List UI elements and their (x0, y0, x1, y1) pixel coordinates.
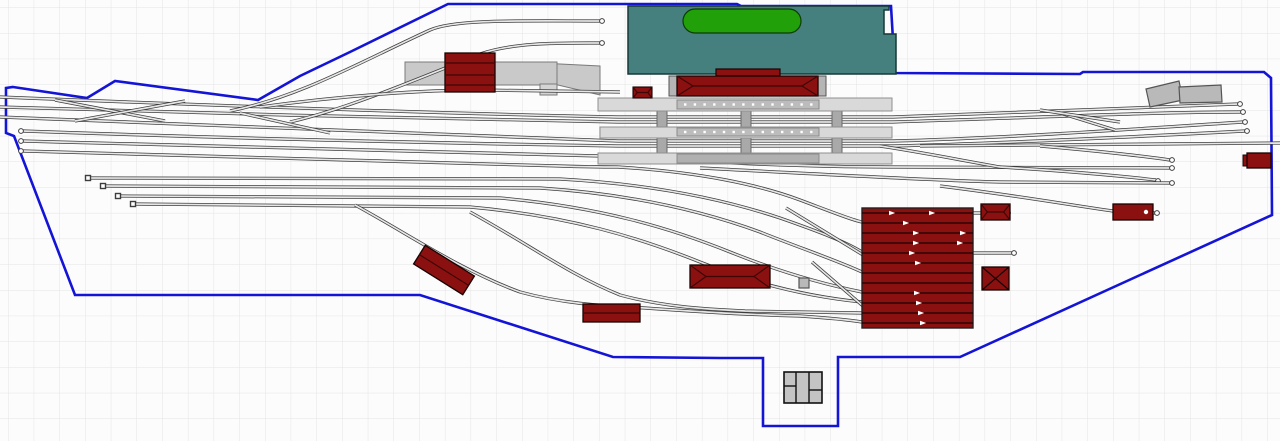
track-end-marker (19, 139, 24, 144)
canopy-column-dot (713, 103, 715, 105)
canopy-column-dot (762, 103, 764, 105)
east-edge-hut[interactable] (1243, 153, 1271, 168)
gray-building-2[interactable] (1179, 85, 1222, 103)
station-pillar (818, 76, 826, 96)
canopy-column-dot (781, 131, 783, 133)
track-end-marker (19, 149, 24, 154)
canopy-column-dot (713, 131, 715, 133)
building-dot (1144, 210, 1148, 214)
small-gray-structure[interactable] (799, 278, 809, 288)
track-end-marker (19, 129, 24, 134)
canopy-column-dot (703, 103, 705, 105)
track-end-marker (600, 19, 605, 24)
track-end-marker (1243, 120, 1248, 125)
goods-shed-building[interactable] (445, 53, 495, 92)
platform-canopy (677, 154, 819, 163)
canopy-column-dot (781, 103, 783, 105)
canopy-column-dot (723, 131, 725, 133)
plan-canvas[interactable] (0, 0, 1280, 441)
buffer-stop[interactable] (116, 194, 121, 199)
buffer-stop[interactable] (131, 202, 136, 207)
platform-2[interactable] (600, 127, 892, 138)
track-end-marker (1245, 129, 1250, 134)
track-end-marker (1012, 251, 1017, 256)
canopy-column-dot (791, 103, 793, 105)
station-hut[interactable] (633, 87, 652, 98)
canopy-column-dot (742, 103, 744, 105)
canopy-column-dot (771, 103, 773, 105)
buffer-stop[interactable] (101, 184, 106, 189)
canopy-column-dot (810, 103, 812, 105)
canopy-column-dot (800, 103, 802, 105)
canopy-column-dot (752, 131, 754, 133)
canopy-column-dot (742, 131, 744, 133)
platform-canopy (677, 100, 819, 109)
park-area[interactable] (628, 6, 896, 74)
canopy-column-dot (694, 103, 696, 105)
track-end-marker (1170, 181, 1175, 186)
depot-hut-north[interactable] (981, 204, 1010, 220)
platform-3[interactable] (598, 153, 892, 164)
canopy-column-dot (733, 103, 735, 105)
canopy-column-dot (703, 131, 705, 133)
track-end-marker (1238, 102, 1243, 107)
storage-south[interactable] (583, 304, 640, 322)
canopy-column-dot (694, 131, 696, 133)
depot-hut-south[interactable] (982, 267, 1009, 290)
track-end-marker (600, 41, 605, 46)
platform-canopy (677, 128, 819, 136)
canopy-column-dot (810, 131, 812, 133)
canopy-column-dot (771, 131, 773, 133)
track-end-marker (1241, 110, 1246, 115)
canopy-column-dot (752, 103, 754, 105)
canopy-column-dot (733, 131, 735, 133)
canopy-column-dot (762, 131, 764, 133)
track-end-marker (1170, 166, 1175, 171)
buffer-stop[interactable] (86, 176, 91, 181)
canopy-column-dot (684, 103, 686, 105)
station-upper-wing (716, 69, 780, 76)
canopy-column-dot (800, 131, 802, 133)
canopy-column-dot (791, 131, 793, 133)
east-shed[interactable] (1113, 204, 1153, 220)
canopy-column-dot (684, 131, 686, 133)
pond[interactable] (683, 9, 801, 33)
notch-building[interactable] (784, 372, 822, 403)
warehouse-south[interactable] (690, 265, 770, 288)
canopy-column-dot (723, 103, 725, 105)
platform-1[interactable] (598, 98, 892, 111)
track-end-marker (1155, 211, 1160, 216)
track-plan-app (0, 0, 1280, 441)
track-end-marker (1170, 158, 1175, 163)
station-pillar (669, 76, 677, 96)
engine-shed[interactable] (862, 208, 973, 328)
